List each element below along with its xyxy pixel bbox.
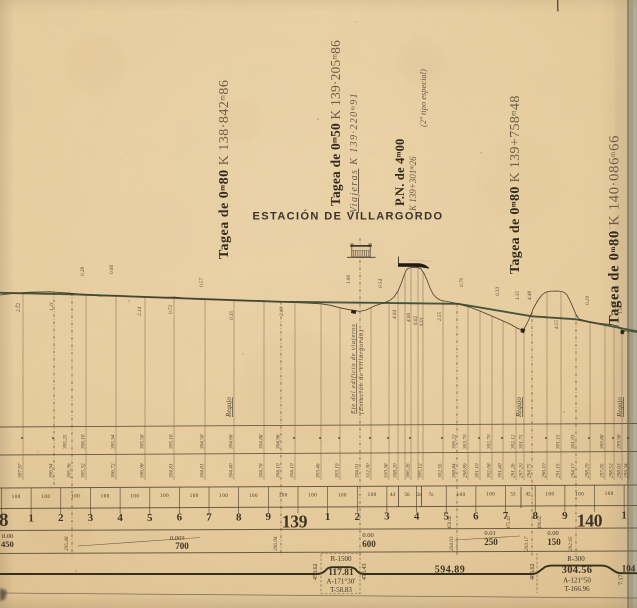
svg-text:100: 100: [279, 494, 288, 499]
svg-text:304.01: 304.01: [355, 463, 361, 478]
svg-text:303.70: 303.70: [463, 434, 469, 449]
svg-text:302.55: 302.55: [438, 463, 444, 478]
svg-text:56: 56: [405, 493, 411, 498]
svg-text:301.15: 301.15: [556, 434, 562, 449]
svg-text:9: 9: [562, 510, 568, 522]
svg-text:298.29: 298.29: [585, 463, 591, 478]
svg-text:150: 150: [547, 537, 561, 547]
svg-text:0.35: 0.35: [229, 311, 235, 320]
svg-text:(Estación de Villargordo): (Estación de Villargordo): [358, 329, 365, 414]
svg-text:2: 2: [58, 512, 64, 524]
svg-text:100: 100: [605, 492, 614, 497]
svg-text:R-1500: R-1500: [331, 555, 353, 563]
svg-text:304.10: 304.10: [276, 463, 282, 478]
svg-text:7.17: 7.17: [619, 575, 625, 586]
svg-text:1.66: 1.66: [346, 275, 352, 284]
svg-text:312.30: 312.30: [366, 463, 372, 478]
svg-text:117.81: 117.81: [328, 568, 354, 578]
svg-text:2: 2: [355, 511, 361, 523]
svg-text:308.84: 308.84: [452, 463, 458, 478]
svg-text:306.72: 306.72: [111, 463, 117, 478]
svg-text:296.10: 296.10: [542, 463, 548, 478]
svg-text:44: 44: [390, 493, 396, 498]
svg-text:P.N. de 4m00: P.N. de 4m00: [393, 138, 407, 206]
svg-text:4.55: 4.55: [553, 320, 560, 329]
svg-text:294.63: 294.63: [449, 536, 455, 551]
svg-text:305.94: 305.94: [111, 434, 117, 449]
svg-text:T-166.96: T-166.96: [564, 585, 590, 593]
svg-text:42: 42: [526, 493, 532, 498]
svg-text:304.68: 304.68: [229, 434, 235, 449]
svg-text:486.62: 486.62: [538, 515, 543, 529]
svg-text:0.28: 0.28: [80, 267, 86, 276]
svg-text:100: 100: [368, 493, 377, 498]
svg-text:306.18: 306.18: [81, 434, 87, 449]
svg-text:458.62: 458.62: [313, 564, 319, 581]
svg-text:100: 100: [160, 494, 169, 499]
svg-text:3: 3: [384, 511, 390, 523]
svg-text:305.12: 305.12: [418, 463, 424, 478]
svg-text:140: 140: [577, 511, 603, 531]
svg-text:475.43: 475.43: [362, 564, 368, 581]
svg-text:0.00: 0.00: [547, 530, 558, 537]
svg-text:6: 6: [473, 510, 479, 522]
svg-text:2o: 2o: [417, 493, 423, 498]
svg-text:301.75: 301.75: [519, 434, 525, 449]
svg-text:0.57: 0.57: [199, 278, 205, 287]
svg-text:302.08: 302.08: [487, 463, 493, 478]
svg-text:T-58.83: T-58.83: [330, 586, 352, 594]
svg-text:Tagea de 0m50 K 139·205m86: Tagea de 0m50 K 139·205m86: [328, 40, 343, 206]
svg-text:0.54: 0.54: [377, 279, 384, 288]
svg-text:304.81: 304.81: [200, 463, 206, 478]
svg-text:306.94: 306.94: [49, 463, 55, 478]
svg-text:53: 53: [511, 493, 517, 498]
svg-text:303.19: 303.19: [335, 463, 341, 478]
svg-text:0.00: 0.00: [362, 532, 373, 539]
svg-text:1: 1: [621, 510, 627, 522]
svg-text:4.66: 4.66: [405, 313, 412, 322]
svg-text:299.34: 299.34: [624, 463, 630, 478]
svg-text:250: 250: [484, 537, 498, 547]
svg-text:4: 4: [117, 512, 123, 524]
svg-text:(2º tipo especial): (2º tipo especial): [418, 69, 428, 127]
svg-text:296.04: 296.04: [273, 536, 279, 551]
svg-text:100: 100: [486, 493, 495, 498]
svg-text:458.62: 458.62: [448, 515, 453, 529]
svg-text:305.58: 305.58: [140, 434, 146, 449]
svg-text:7o: 7o: [429, 493, 435, 498]
svg-text:100: 100: [338, 493, 347, 498]
svg-text:301.03: 301.03: [571, 434, 577, 449]
svg-text:300.88: 300.88: [600, 434, 606, 449]
svg-text:4.64: 4.64: [391, 310, 398, 319]
svg-text:2.55: 2.55: [437, 312, 443, 321]
svg-text:475.43: 475.43: [507, 515, 512, 529]
svg-text:6: 6: [177, 512, 183, 524]
svg-text:291.15: 291.15: [556, 463, 562, 478]
svg-text:1: 1: [325, 511, 331, 523]
svg-text:0.66: 0.66: [109, 265, 115, 274]
svg-text:0.70: 0.70: [459, 278, 465, 287]
svg-text:1: 1: [28, 512, 34, 524]
svg-text:600: 600: [362, 539, 376, 549]
svg-text:297.05: 297.05: [600, 463, 606, 478]
svg-text:700: 700: [175, 541, 189, 551]
svg-text:309.22: 309.22: [452, 434, 458, 449]
svg-text:304.56: 304.56: [562, 565, 593, 576]
svg-text:5: 5: [147, 512, 153, 524]
svg-text:6.01: 6.01: [419, 317, 425, 326]
svg-text:0.72: 0.72: [168, 305, 174, 314]
svg-text:8: 8: [236, 511, 242, 523]
svg-text:295.48: 295.48: [64, 536, 70, 551]
svg-text:A-171°30': A-171°30': [327, 578, 356, 586]
svg-text:100: 100: [12, 495, 21, 500]
svg-text:Regajo: Regajo: [616, 397, 624, 418]
svg-text:292.95: 292.95: [568, 536, 574, 551]
svg-text:100: 100: [575, 492, 584, 497]
svg-text:304.78: 304.78: [259, 463, 265, 478]
svg-text:8: 8: [0, 510, 9, 531]
svg-text:1.35: 1.35: [515, 291, 521, 300]
svg-text:4.48: 4.48: [526, 291, 533, 300]
svg-text:2.52: 2.52: [16, 303, 22, 312]
svg-text:Tagea de 0m80 K 138·842m86: Tagea de 0m80 K 138·842m86: [217, 80, 232, 259]
svg-text:450: 450: [1, 539, 14, 549]
svg-text:Regajo: Regajo: [515, 397, 523, 418]
svg-text:100: 100: [130, 494, 139, 499]
svg-text:100: 100: [71, 495, 80, 500]
svg-text:302.12: 302.12: [511, 434, 517, 449]
svg-text:100: 100: [457, 493, 466, 498]
svg-text:0.33: 0.33: [495, 287, 501, 296]
svg-text:304.81: 304.81: [169, 463, 175, 478]
svg-text:303.46: 303.46: [316, 463, 322, 478]
svg-text:306.08: 306.08: [140, 463, 146, 478]
svg-text:100: 100: [249, 494, 258, 499]
svg-text:306.26: 306.26: [406, 463, 412, 478]
svg-text:305.25: 305.25: [63, 434, 69, 449]
svg-text:2.19: 2.19: [279, 307, 285, 316]
svg-text:9: 9: [266, 511, 272, 523]
svg-text:K 139+301m26: K 139+301m26: [408, 156, 418, 212]
svg-text:305.32: 305.32: [81, 463, 87, 478]
svg-text:294.75: 294.75: [527, 463, 533, 478]
svg-text:298.89: 298.89: [463, 463, 469, 478]
svg-text:Regajo: Regajo: [225, 397, 233, 418]
svg-text:0.01: 0.01: [484, 530, 495, 537]
svg-text:2.14: 2.14: [136, 307, 143, 316]
svg-text:3: 3: [88, 512, 94, 524]
svg-text:308.20: 308.20: [393, 463, 399, 478]
svg-text:304.88: 304.88: [259, 434, 265, 449]
svg-text:594.89: 594.89: [435, 565, 466, 576]
svg-text:305.36: 305.36: [67, 463, 73, 478]
svg-text:299.98: 299.98: [617, 434, 623, 449]
svg-text:1.21: 1.21: [49, 302, 55, 311]
svg-text:0.29: 0.29: [585, 296, 591, 305]
svg-text:294.17: 294.17: [571, 463, 577, 478]
svg-text:301.40: 301.40: [498, 463, 504, 478]
svg-text:100: 100: [308, 494, 317, 499]
svg-text:291.26: 291.26: [511, 463, 517, 478]
svg-text:100: 100: [101, 495, 110, 500]
svg-text:305.18: 305.18: [169, 434, 175, 449]
svg-text:100: 100: [219, 494, 228, 499]
svg-text:304.40: 304.40: [229, 463, 235, 478]
svg-text:Tagea de 0m80 K 140·086m66: Tagea de 0m80 K 140·086m66: [607, 135, 623, 325]
svg-text:A-121°50: A-121°50: [563, 577, 591, 585]
svg-text:100: 100: [42, 495, 51, 500]
svg-text:298.63: 298.63: [617, 463, 623, 478]
svg-text:297.20: 297.20: [519, 463, 525, 478]
svg-text:293.17: 293.17: [524, 536, 530, 551]
svg-text:100: 100: [546, 492, 555, 497]
svg-text:304.96: 304.96: [276, 434, 282, 449]
svg-text:ESTACIÓN DE VILLARGORDO: ESTACIÓN DE VILLARGORDO: [253, 210, 444, 223]
svg-text:310.38: 310.38: [384, 463, 390, 478]
svg-text:486.62: 486.62: [530, 564, 536, 581]
svg-text:104: 104: [622, 564, 636, 574]
svg-text:100: 100: [190, 494, 199, 499]
svg-text:Tagea de 0m80 K 139+758m48: Tagea de 0m80 K 139+758m48: [508, 95, 523, 274]
svg-text:R-300: R-300: [567, 555, 585, 563]
svg-text:307.97: 307.97: [18, 463, 24, 478]
svg-text:304.58: 304.58: [200, 434, 206, 449]
svg-text:7: 7: [206, 512, 212, 524]
svg-text:Eje del edificio de viajeros: Eje del edificio de viajeros: [350, 324, 357, 415]
svg-text:4: 4: [414, 511, 420, 523]
svg-text:304.10: 304.10: [290, 463, 296, 478]
svg-text:298.52: 298.52: [609, 463, 615, 478]
svg-text:302.70: 302.70: [487, 434, 493, 449]
svg-text:139: 139: [282, 512, 308, 532]
svg-text:301.10: 301.10: [475, 463, 481, 478]
